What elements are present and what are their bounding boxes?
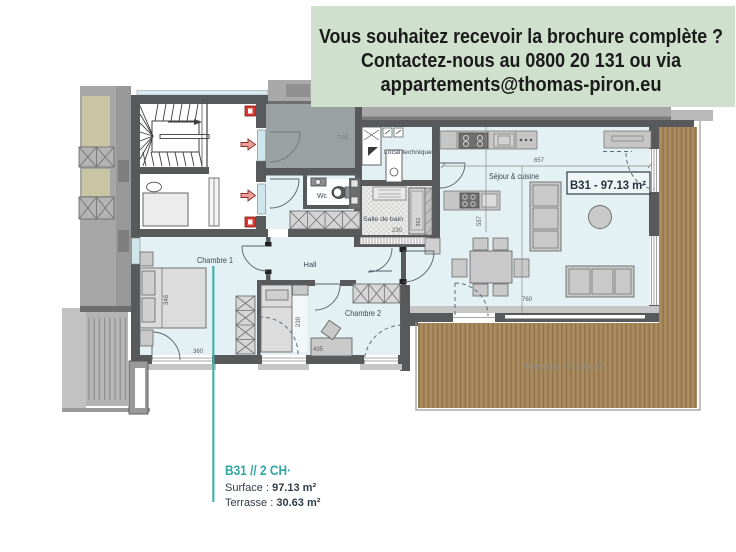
svg-text:Surface : 97.13 m²: Surface : 97.13 m² [225,482,316,494]
svg-text:Vous souhaitez recevoir la bro: Vous souhaitez recevoir la brochure comp… [319,26,723,48]
svg-text:239: 239 [296,316,302,327]
svg-text:B31 // 2 CH·: B31 // 2 CH· [225,462,291,478]
svg-text:B31 - 97.13 m²: B31 - 97.13 m² [570,178,646,192]
svg-text:557: 557 [477,215,483,226]
svg-text:348: 348 [164,294,170,305]
svg-text:Hall: Hall [304,260,317,269]
svg-text:hall: hall [338,134,349,141]
svg-text:Local technique: Local technique [384,149,432,156]
svg-text:Contactez-nous au 0800 20 131: Contactez-nous au 0800 20 131 ou via [361,50,682,72]
svg-text:435: 435 [313,347,324,353]
svg-text:Salle de bain: Salle de bain [363,216,403,223]
svg-text:Séjour & cuisine: Séjour & cuisine [489,172,539,181]
svg-text:361: 361 [416,217,422,226]
svg-text:Terrasse - 30.63 m²: Terrasse - 30.63 m² [524,361,604,371]
svg-text:760: 760 [522,297,533,303]
svg-text:230: 230 [392,228,403,234]
svg-text:Chambre 2: Chambre 2 [345,309,381,318]
svg-text:Chambre 1: Chambre 1 [197,256,233,265]
svg-text:Wc: Wc [317,193,328,200]
svg-text:657: 657 [534,158,545,164]
svg-text:360: 360 [193,349,204,355]
svg-text:appartements@thomas-piron.eu: appartements@thomas-piron.eu [381,74,662,96]
svg-text:Terrasse : 30.63 m²: Terrasse : 30.63 m² [225,497,321,509]
